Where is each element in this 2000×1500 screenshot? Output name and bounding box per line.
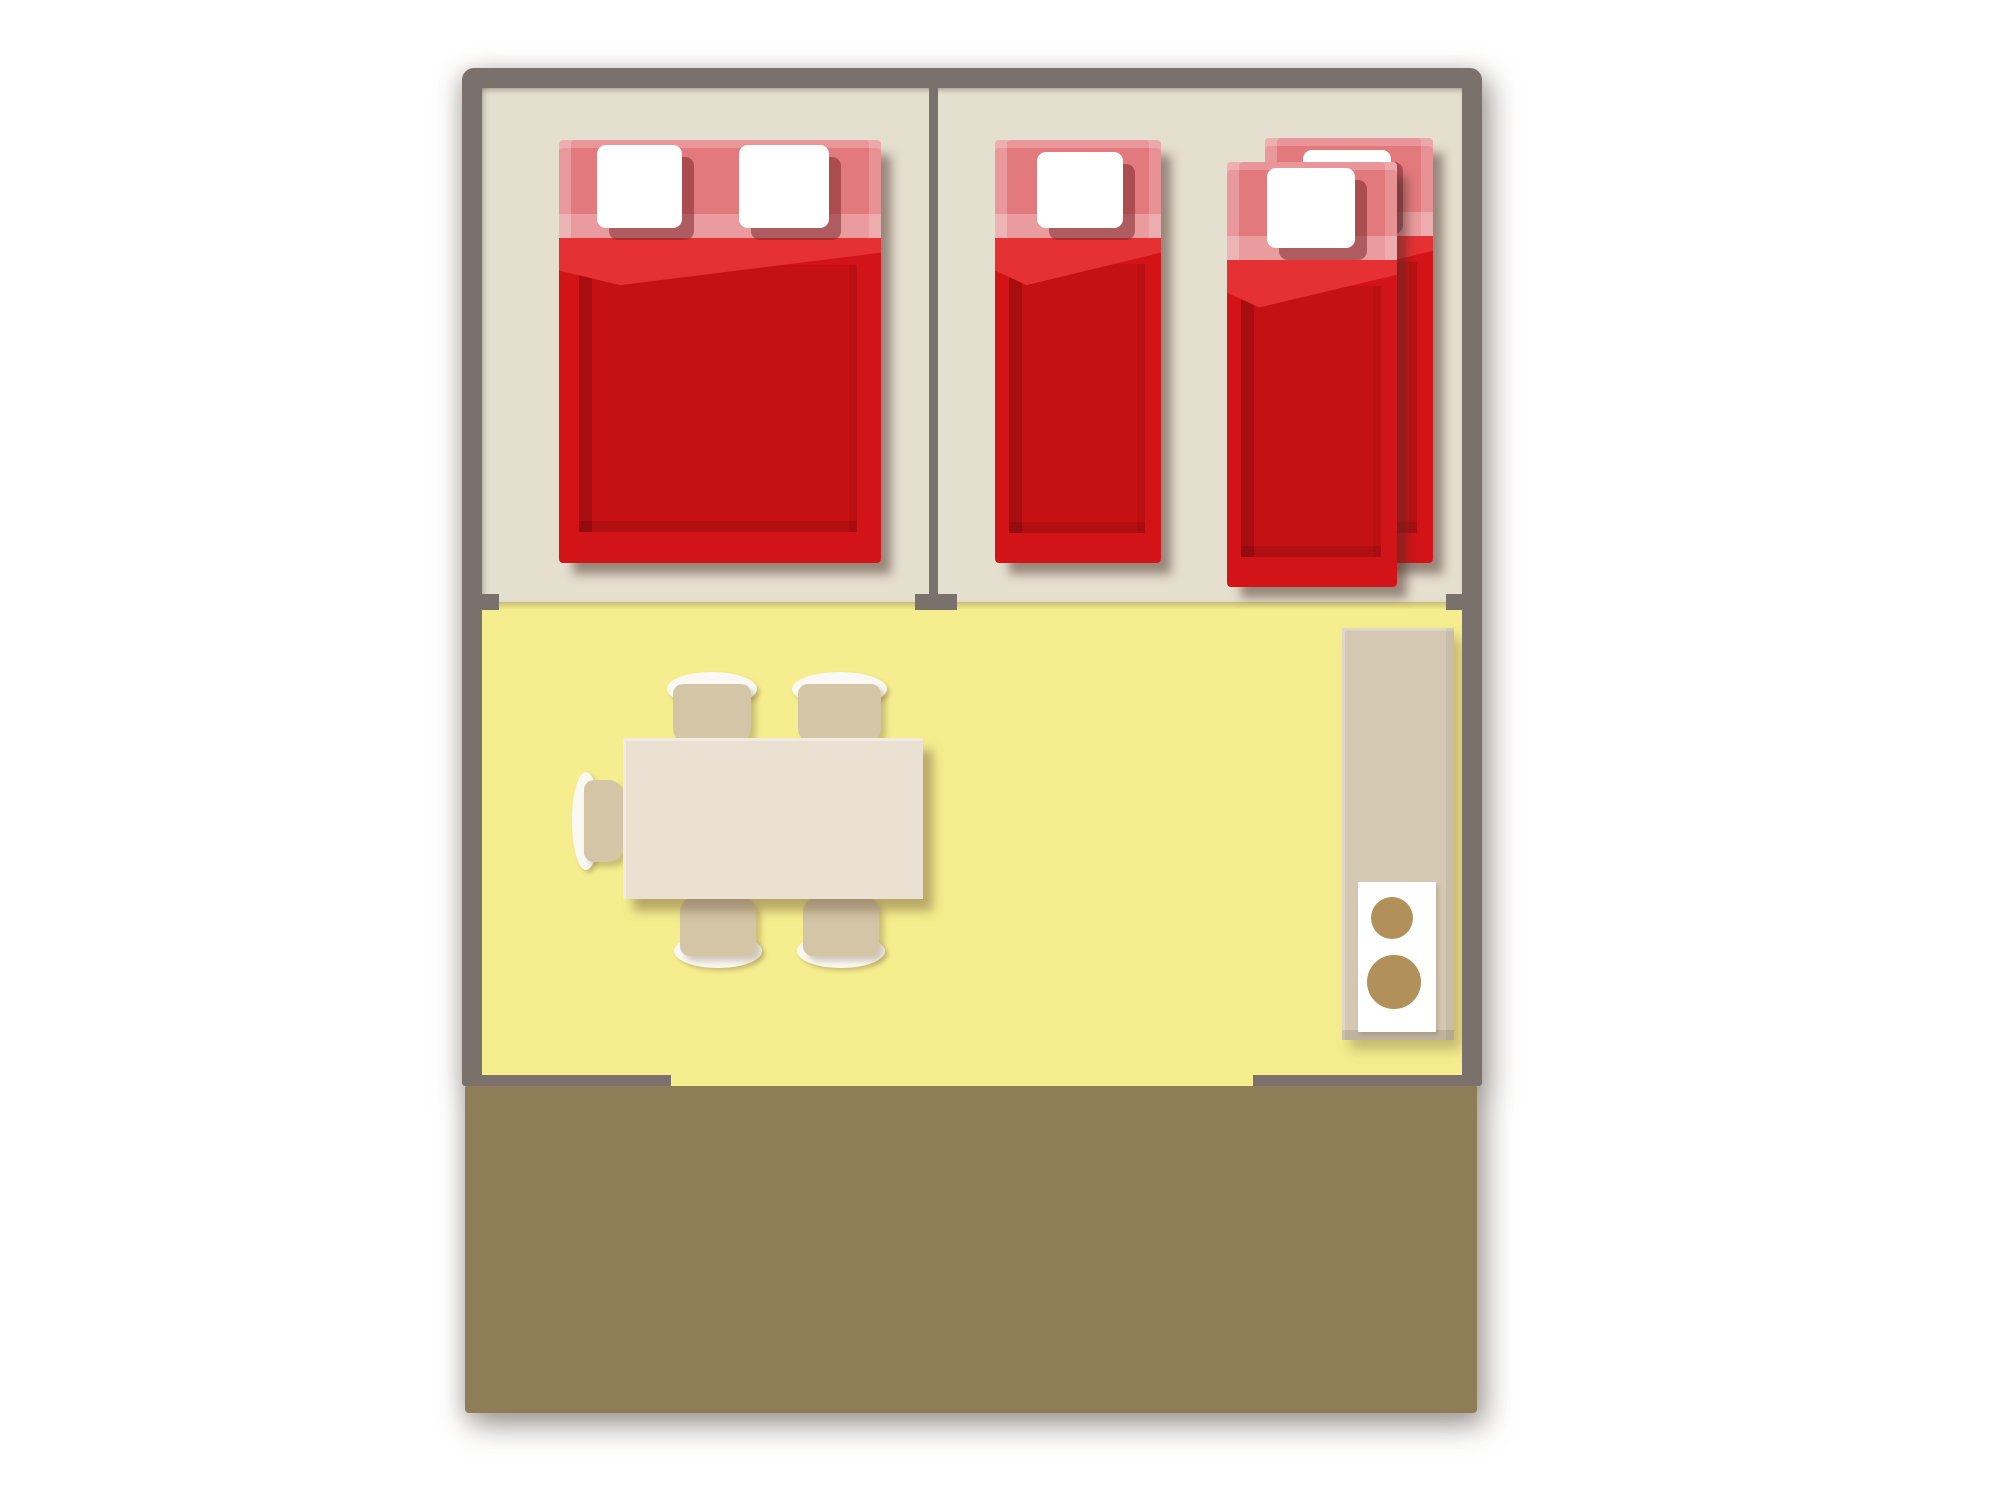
double-bed-duvet (559, 238, 881, 563)
building-walls (462, 68, 1482, 1086)
chair-north-1 (667, 672, 757, 744)
pillow (597, 145, 682, 228)
pillow (1037, 152, 1123, 228)
single-bed-2 (1227, 162, 1397, 587)
dining-table (623, 738, 923, 899)
terrace-threshold-right (1253, 1075, 1462, 1086)
pillow (1267, 168, 1355, 248)
stove-panel (1358, 882, 1436, 1032)
wall-stub-center (915, 594, 957, 610)
stove-burner-small (1371, 897, 1413, 939)
chair-seat (584, 780, 624, 862)
single-bed-1-duvet (995, 238, 1161, 563)
chair-seat (680, 896, 756, 956)
double-bed-duvet-inner (579, 265, 857, 532)
chair-seat (673, 684, 751, 744)
bedroom-divider-wall (929, 88, 938, 602)
terrace-threshold-left (482, 1075, 671, 1086)
wall-stub-left (482, 594, 499, 610)
kitchen-unit (1342, 628, 1454, 1040)
chair-south-1 (674, 896, 762, 968)
double-bed (559, 140, 881, 563)
single-bed-2-duvet-inner (1241, 286, 1381, 557)
building-interior (482, 88, 1462, 1086)
single-bed-2-duvet (1227, 260, 1397, 587)
chair-north-2 (792, 672, 887, 744)
single-bed-1 (995, 140, 1161, 563)
floor-plan (0, 0, 2000, 1500)
chair-seat (798, 684, 881, 744)
floor-plan-image (0, 0, 2000, 1500)
single-bed-1-duvet-inner (1009, 264, 1145, 533)
chair-south-2 (797, 896, 885, 968)
wall-stub-right (1446, 594, 1462, 610)
pillow (739, 145, 829, 228)
chair-west (572, 772, 624, 870)
terrace-deck (465, 1086, 1477, 1413)
stove-burner-large (1367, 955, 1421, 1009)
room-boundary-shadow (482, 602, 1462, 610)
chair-seat (803, 896, 879, 956)
